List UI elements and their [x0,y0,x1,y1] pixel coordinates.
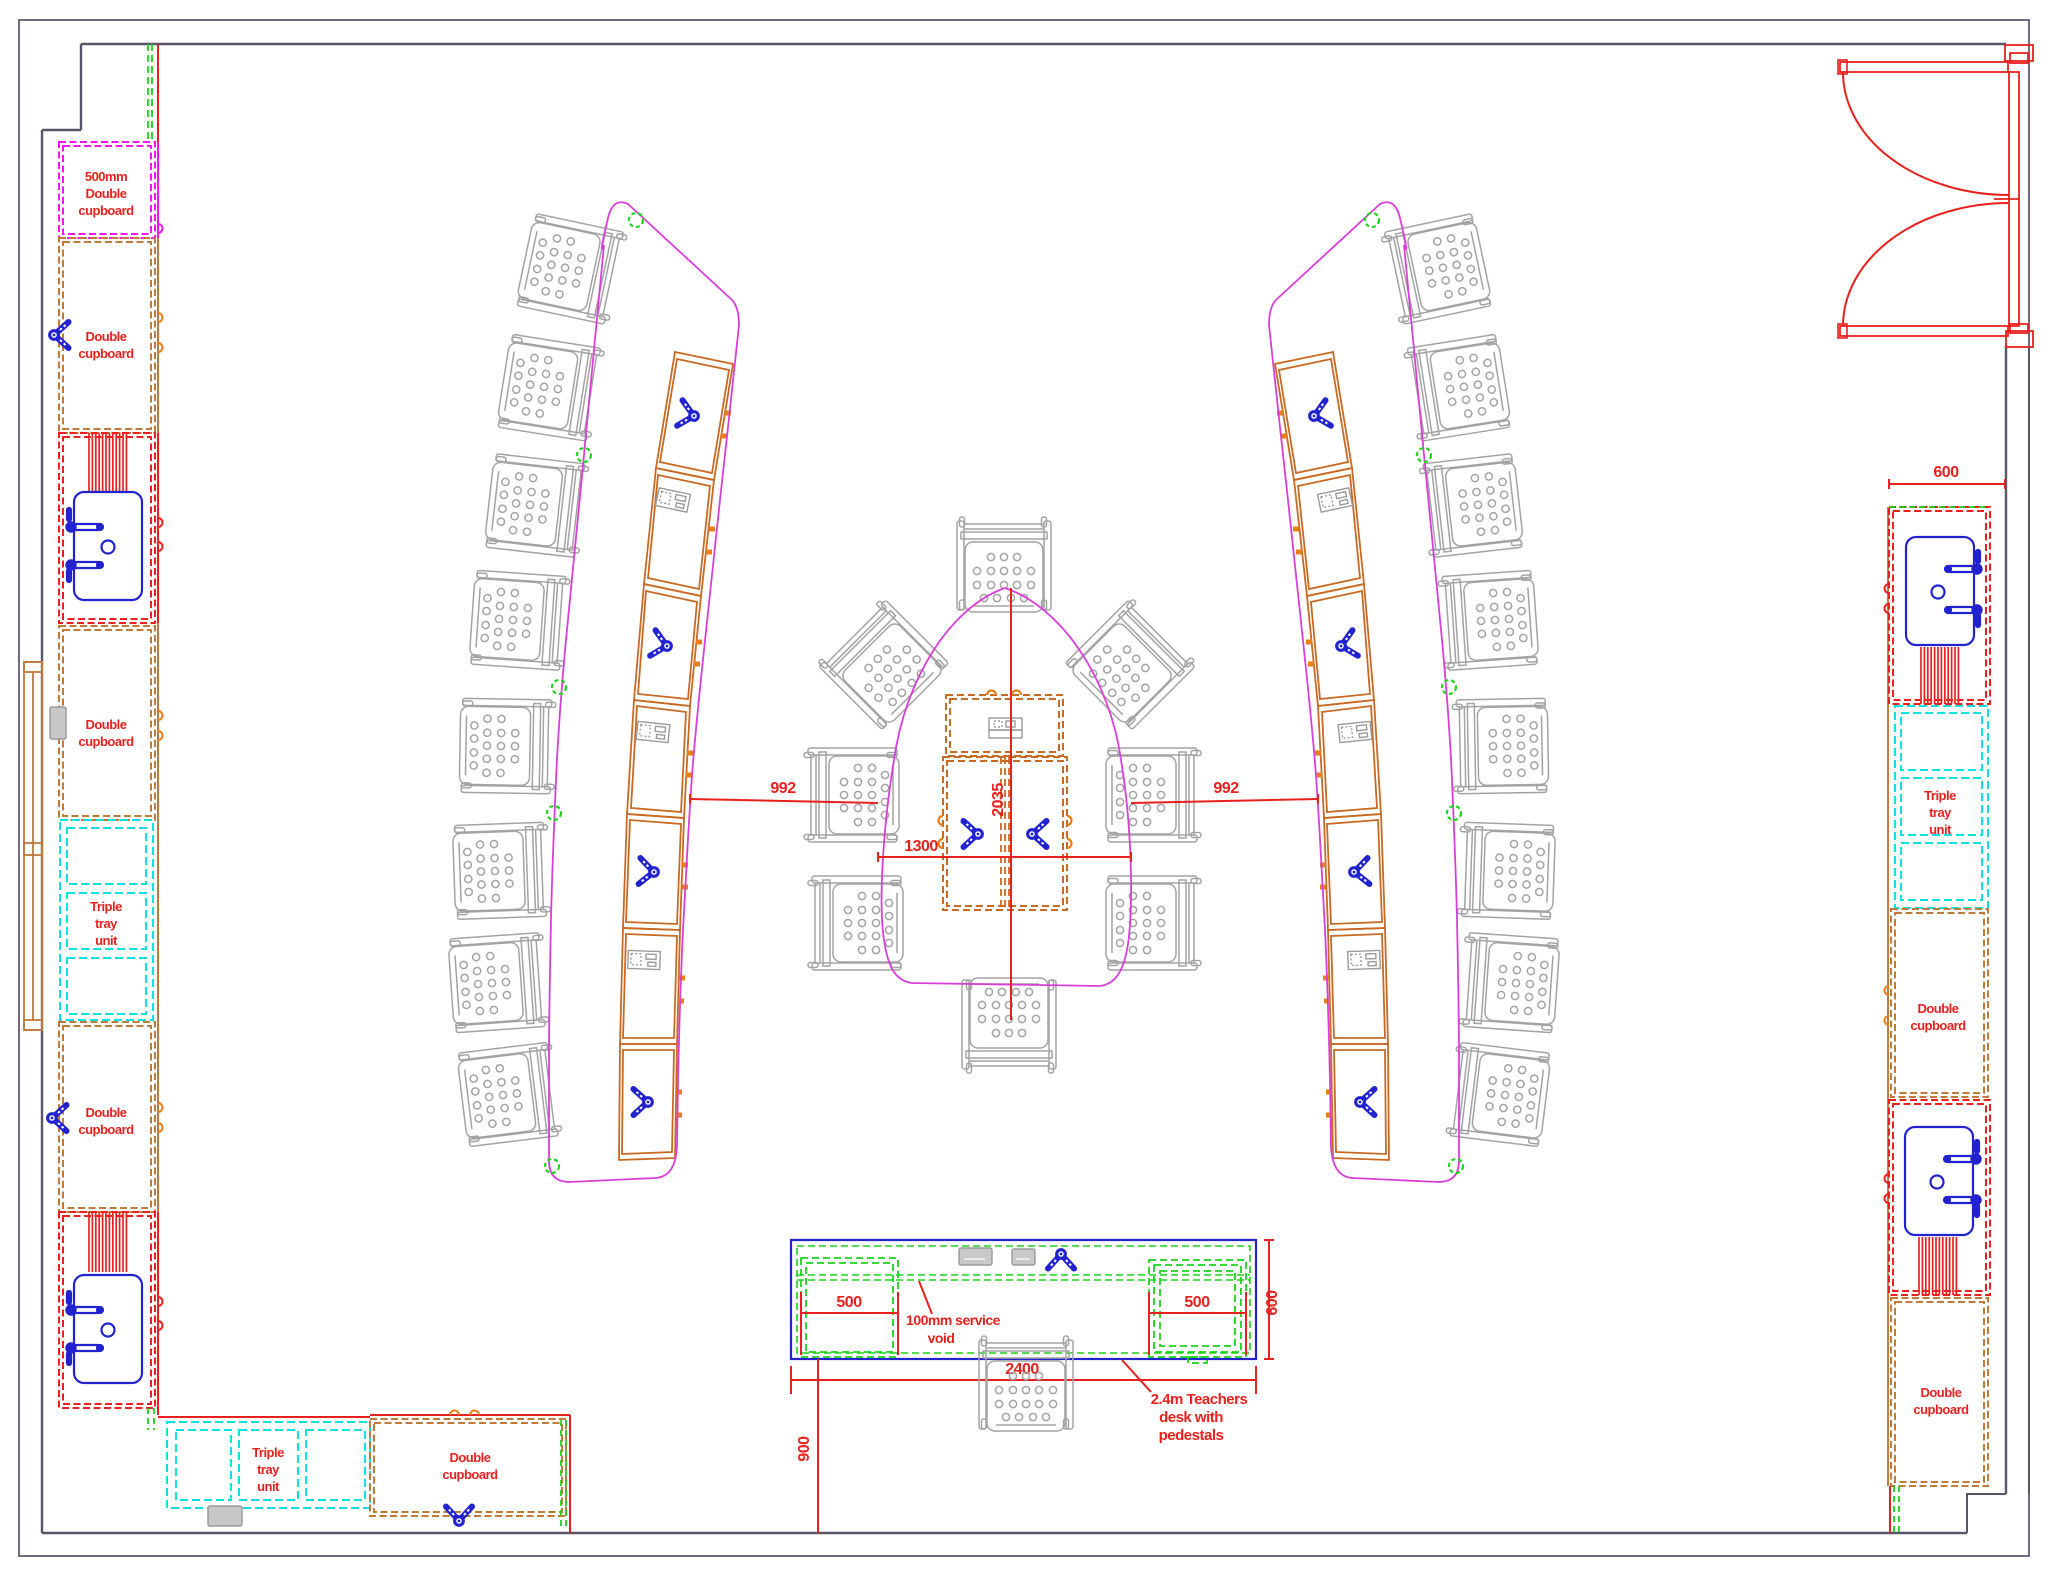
svg-text:unit: unit [257,1479,280,1494]
svg-text:1300: 1300 [904,838,938,855]
svg-text:Double: Double [85,717,126,732]
svg-text:900: 900 [796,1436,813,1462]
svg-text:cupboard: cupboard [78,346,134,361]
svg-text:500: 500 [836,1294,862,1311]
svg-text:tray: tray [257,1462,280,1477]
svg-text:tray: tray [1929,805,1952,820]
svg-text:Double: Double [1917,1001,1958,1016]
svg-text:cupboard: cupboard [442,1467,498,1482]
svg-text:Double: Double [85,186,126,201]
svg-text:100mm service: 100mm service [906,1312,1001,1328]
svg-text:2.4m Teachers: 2.4m Teachers [1151,1391,1248,1408]
svg-text:cupboard: cupboard [1910,1018,1966,1033]
svg-text:cupboard: cupboard [78,1122,134,1137]
svg-text:cupboard: cupboard [78,203,134,218]
svg-text:2035: 2035 [990,783,1007,817]
svg-text:Triple: Triple [252,1445,284,1460]
svg-text:unit: unit [95,933,118,948]
svg-text:Double: Double [449,1450,490,1465]
svg-text:desk with: desk with [1159,1409,1223,1426]
svg-text:992: 992 [1213,780,1239,797]
svg-text:void: void [928,1330,955,1346]
svg-text:cupboard: cupboard [1913,1402,1969,1417]
svg-text:unit: unit [1929,822,1952,837]
svg-text:600: 600 [1933,464,1959,481]
svg-text:500: 500 [1184,1294,1210,1311]
svg-text:Double: Double [85,329,126,344]
svg-text:Triple: Triple [1924,788,1956,803]
svg-text:tray: tray [95,916,118,931]
svg-text:pedestals: pedestals [1159,1427,1224,1444]
svg-text:Double: Double [85,1105,126,1120]
svg-text:500mm: 500mm [85,169,127,184]
svg-text:cupboard: cupboard [78,734,134,749]
svg-text:600: 600 [1264,1290,1281,1316]
svg-text:992: 992 [770,780,796,797]
svg-text:Triple: Triple [90,899,122,914]
svg-text:Double: Double [1920,1385,1961,1400]
